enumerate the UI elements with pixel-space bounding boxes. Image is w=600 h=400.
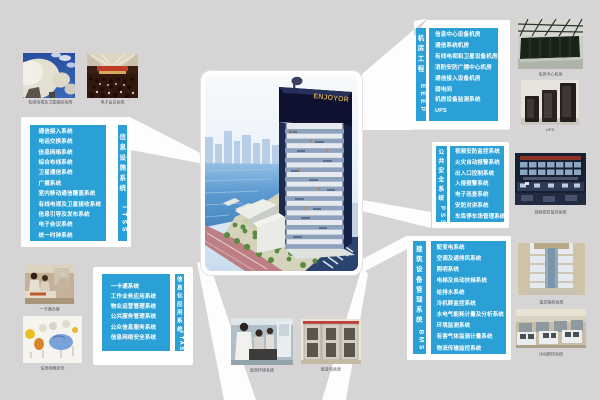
- svg-text:T: T: [120, 212, 127, 216]
- svg-text:统: 统: [119, 183, 126, 192]
- svg-text:机: 机: [418, 33, 425, 42]
- svg-text:用: 用: [175, 309, 182, 316]
- svg-text:共: 共: [438, 157, 444, 165]
- svg-text:信: 信: [119, 132, 126, 141]
- svg-text:E: E: [419, 84, 426, 89]
- svg-text:息: 息: [119, 142, 126, 151]
- svg-text:系: 系: [176, 316, 182, 324]
- svg-text:系: 系: [438, 184, 444, 192]
- svg-text:B: B: [417, 329, 424, 334]
- svg-text:管: 管: [416, 284, 423, 293]
- svg-text:S: S: [417, 345, 424, 349]
- svg-text:系: 系: [119, 173, 126, 182]
- svg-text:I: I: [120, 206, 127, 208]
- svg-text:息: 息: [176, 283, 182, 291]
- svg-text:筑: 筑: [416, 254, 423, 263]
- svg-text:E: E: [419, 91, 426, 96]
- svg-text:设: 设: [416, 264, 423, 273]
- svg-text:P: P: [439, 205, 445, 209]
- svg-text:安: 安: [438, 166, 444, 174]
- svg-text:S: S: [120, 227, 127, 232]
- svg-text:系: 系: [416, 304, 423, 313]
- svg-text:S: S: [439, 212, 445, 216]
- svg-text:A: A: [177, 341, 183, 345]
- svg-text:T: T: [177, 335, 183, 339]
- svg-text:房: 房: [418, 43, 425, 52]
- svg-text:公: 公: [438, 149, 444, 156]
- svg-text:施: 施: [119, 162, 126, 171]
- svg-text:全: 全: [437, 175, 445, 183]
- svg-text:P: P: [419, 107, 426, 112]
- svg-text:信: 信: [176, 275, 182, 283]
- svg-text:S: S: [177, 346, 183, 350]
- svg-text:应: 应: [176, 300, 182, 308]
- svg-text:S: S: [120, 219, 127, 224]
- svg-text:理: 理: [416, 294, 423, 303]
- svg-text:建: 建: [416, 244, 423, 253]
- svg-text:E: E: [419, 99, 426, 104]
- svg-text:M: M: [417, 337, 424, 342]
- svg-text:工: 工: [418, 54, 425, 62]
- svg-text:I: I: [177, 331, 183, 333]
- svg-text:化: 化: [176, 291, 182, 299]
- svg-text:程: 程: [417, 64, 425, 73]
- svg-text:统: 统: [438, 194, 444, 202]
- svg-text:设: 设: [119, 152, 126, 161]
- svg-text:备: 备: [415, 274, 423, 283]
- svg-text:S: S: [439, 219, 445, 222]
- svg-text:统: 统: [416, 314, 423, 323]
